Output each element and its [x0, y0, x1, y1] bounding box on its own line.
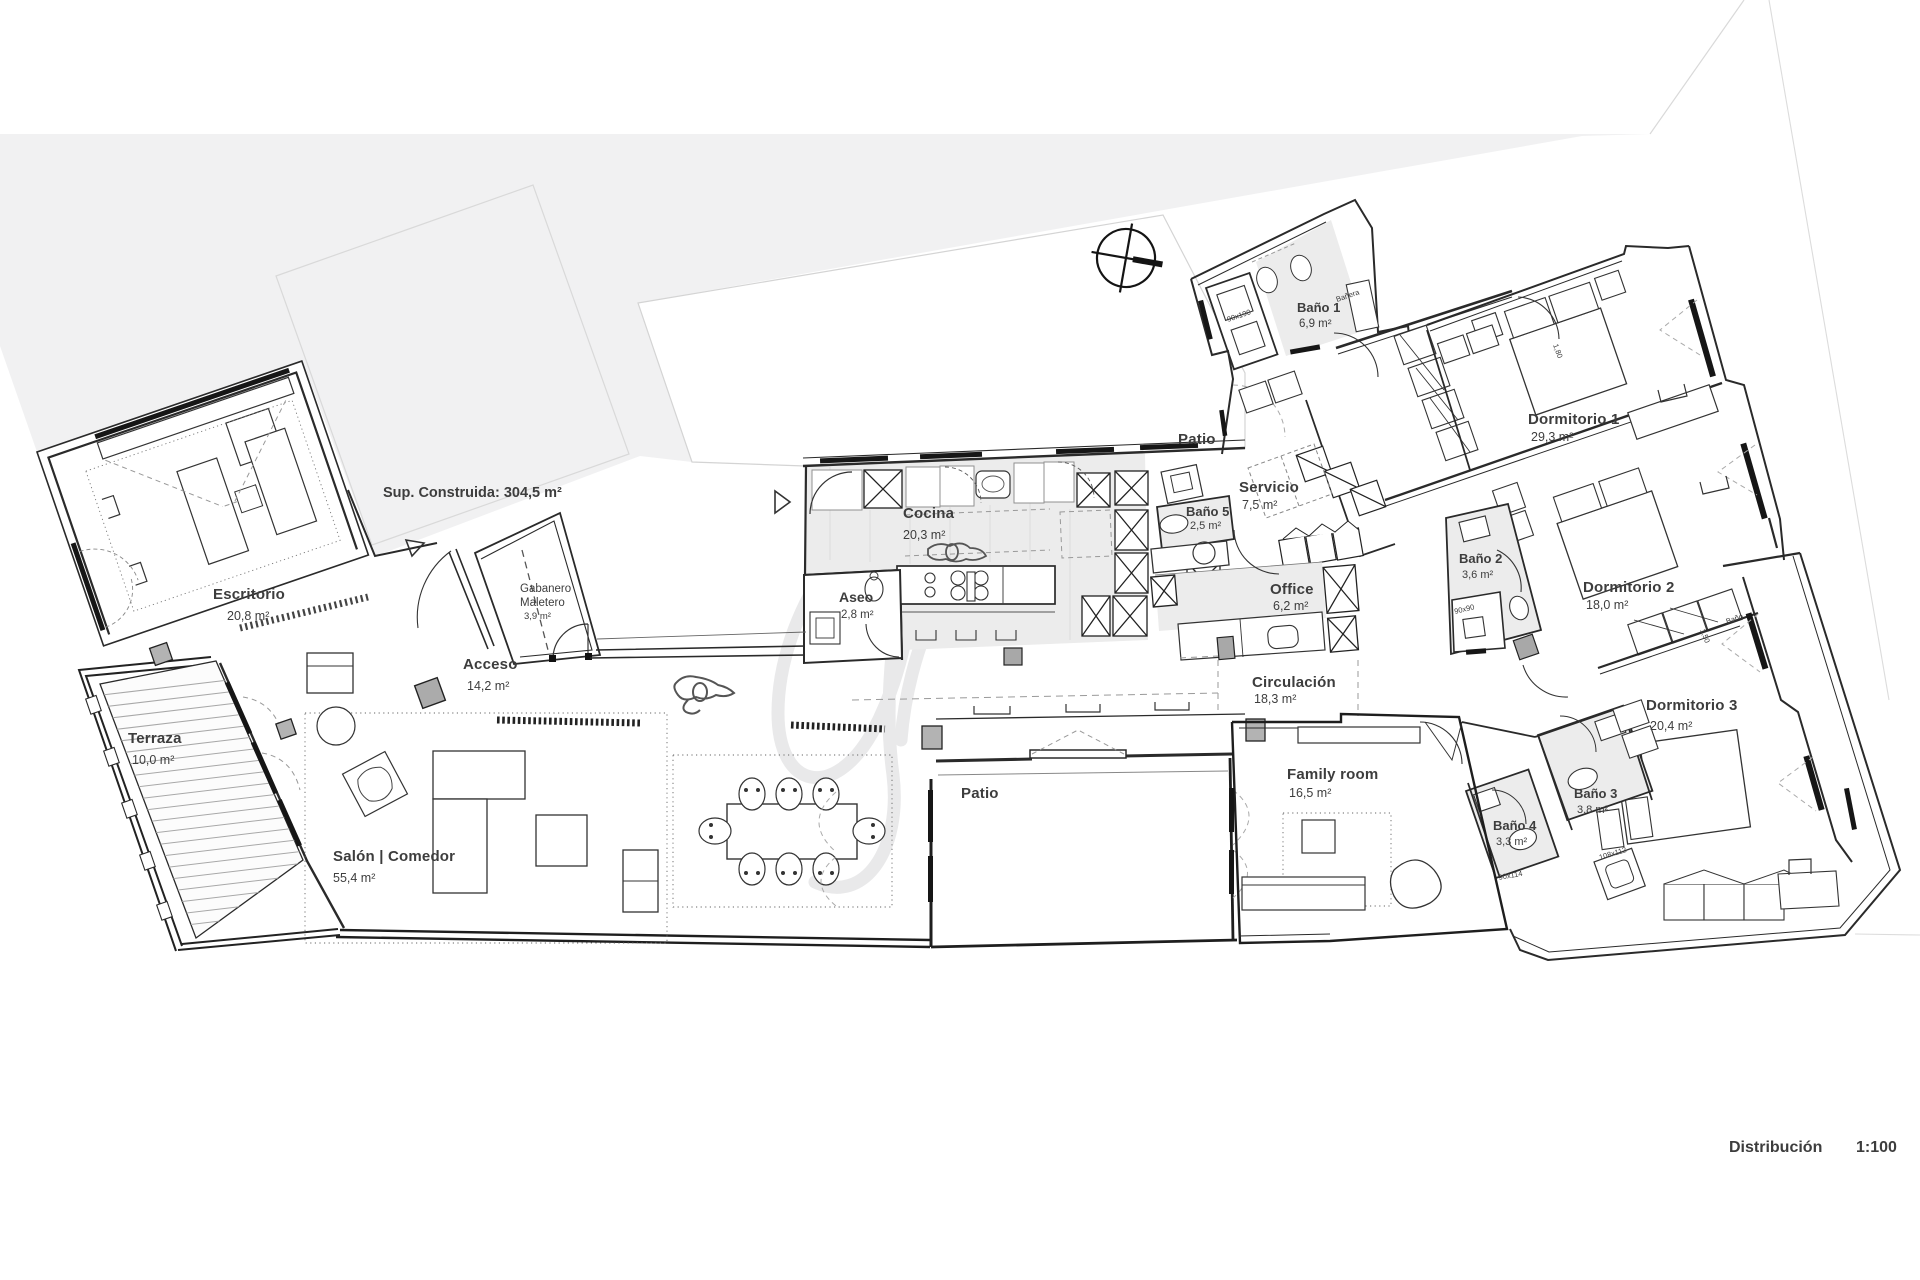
svg-text:2,8 m²: 2,8 m² [841, 609, 874, 621]
svg-text:16,5 m²: 16,5 m² [1289, 786, 1331, 800]
svg-text:20,3 m²: 20,3 m² [903, 528, 945, 542]
svg-text:20,8 m²: 20,8 m² [227, 609, 269, 623]
svg-text:Baño 2: Baño 2 [1459, 551, 1502, 566]
svg-text:Dormitorio 3: Dormitorio 3 [1646, 697, 1738, 714]
svg-text:29,3 m²: 29,3 m² [1531, 430, 1573, 444]
svg-text:Escritorio: Escritorio [213, 586, 285, 603]
svg-text:Baño 1: Baño 1 [1297, 300, 1340, 315]
svg-text:Servicio: Servicio [1239, 479, 1299, 496]
svg-text:Aseo: Aseo [839, 589, 873, 605]
svg-text:Baño 4: Baño 4 [1493, 818, 1537, 833]
svg-text:7,5 m²: 7,5 m² [1242, 498, 1277, 512]
svg-text:18,0 m²: 18,0 m² [1586, 598, 1628, 612]
svg-text:3,3 m²: 3,3 m² [1496, 836, 1528, 848]
svg-text:Patio: Patio [961, 785, 999, 802]
svg-text:20,4 m²: 20,4 m² [1650, 719, 1692, 733]
svg-text:Office: Office [1270, 581, 1314, 598]
svg-text:3,8 m²: 3,8 m² [1577, 804, 1609, 816]
svg-text:Acceso: Acceso [463, 656, 518, 673]
svg-text:Distribución: Distribución [1729, 1139, 1822, 1156]
svg-text:Baño 5: Baño 5 [1186, 504, 1229, 519]
svg-text:Sup. Construida: 304,5 m²: Sup. Construida: 304,5 m² [383, 485, 562, 501]
svg-text:Family room: Family room [1287, 766, 1378, 783]
svg-text:Baño 3: Baño 3 [1574, 786, 1617, 801]
svg-text:14,2 m²: 14,2 m² [467, 679, 509, 693]
svg-text:3,6 m²: 3,6 m² [1462, 569, 1494, 581]
svg-text:Circulación: Circulación [1252, 674, 1336, 691]
svg-text:18,3 m²: 18,3 m² [1254, 692, 1296, 706]
svg-text:10,0 m²: 10,0 m² [132, 753, 174, 767]
svg-text:3,9 m²: 3,9 m² [524, 611, 551, 622]
svg-text:6,2 m²: 6,2 m² [1273, 599, 1308, 613]
svg-text:Maletero: Maletero [520, 597, 565, 609]
svg-text:Dormitorio 2: Dormitorio 2 [1583, 579, 1675, 596]
svg-text:Patio: Patio [1178, 431, 1216, 448]
svg-text:55,4 m²: 55,4 m² [333, 871, 375, 885]
svg-text:Cocina: Cocina [903, 505, 955, 522]
svg-text:2,5 m²: 2,5 m² [1190, 520, 1222, 532]
svg-text:Gabanero: Gabanero [520, 583, 571, 595]
svg-text:Terraza: Terraza [128, 730, 182, 747]
svg-text:Dormitorio 1: Dormitorio 1 [1528, 411, 1620, 428]
svg-text:Salón | Comedor: Salón | Comedor [333, 848, 455, 865]
svg-text:1:100: 1:100 [1856, 1139, 1897, 1156]
svg-text:6,9 m²: 6,9 m² [1299, 318, 1332, 330]
